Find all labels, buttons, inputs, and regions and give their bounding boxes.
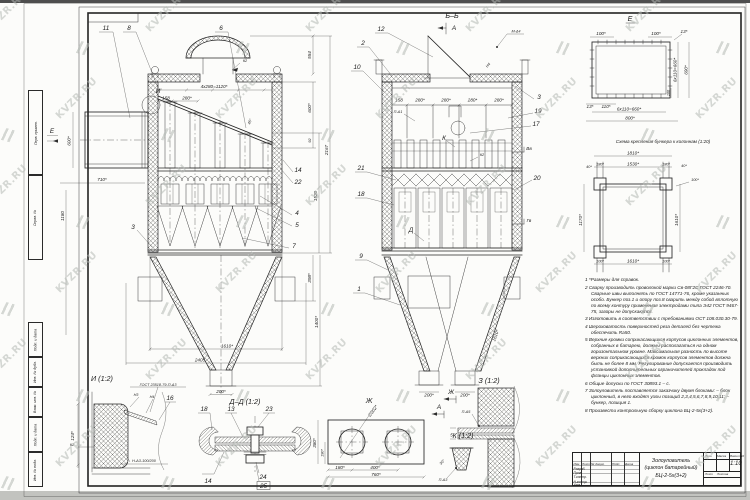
note-item-7: 7 Золоуловитель поставляется заказчику д… bbox=[585, 388, 742, 406]
sv-dim-200b: 200* bbox=[459, 393, 470, 398]
dim-2405: 2405 bbox=[194, 358, 206, 363]
doc-name-line2: (циклон батарейный) bbox=[644, 465, 697, 472]
tb-col-izm: Изм. bbox=[574, 462, 581, 466]
margin-box-podp-data-2: Подп. и дата bbox=[28, 417, 43, 452]
detail-i-marker: И bbox=[156, 88, 161, 95]
doc-name-line3: БЦ-2-5х(3+2) bbox=[655, 473, 686, 480]
detail-i-title: И (1:2) bbox=[91, 374, 113, 383]
margin-label: Подп. и дата bbox=[34, 423, 38, 446]
blueprint-page: 4х280=1120* 158 280* 45° 600* 710* 1180 … bbox=[0, 0, 750, 500]
callout-17: 17 bbox=[532, 121, 540, 128]
e-view: Е 100* 100* 13* 6х110=660* 690* 100 13* … bbox=[586, 14, 689, 121]
di-n3: Н3 bbox=[134, 393, 140, 397]
weld-p1: П-Δ1 bbox=[394, 110, 403, 114]
sc-100r: 100* bbox=[691, 178, 699, 182]
sc-100b: 100* bbox=[662, 260, 670, 264]
tb-sheets-label: Листов bbox=[717, 472, 728, 476]
callout-10: 10 bbox=[353, 64, 361, 71]
margin-label: Инв. № дубл. bbox=[34, 361, 38, 383]
callout-3: 3 bbox=[131, 224, 135, 231]
dim-inlet-width: 710* bbox=[97, 177, 107, 182]
sv-dim-280d: 280* bbox=[493, 98, 504, 103]
ev-100b: 100* bbox=[651, 31, 661, 36]
tb-col-podp: Подп. bbox=[612, 462, 620, 466]
scheme-title: Схема крепления бункера к колоннам (1:20… bbox=[616, 139, 711, 144]
margin-label: Инв. № подл. bbox=[34, 458, 38, 480]
callout-1: 1 bbox=[357, 286, 361, 293]
callout-19: 19 bbox=[534, 108, 542, 115]
callout-9: 9 bbox=[359, 253, 363, 260]
dd-14: 14 bbox=[204, 478, 212, 485]
k-weld: П-Δ3 bbox=[439, 478, 449, 482]
margin-box-podp-data-1: Подп. и дата bbox=[28, 322, 43, 357]
front-view: 4х280=1120* 158 280* 45° 600* 710* 1180 … bbox=[47, 25, 332, 396]
margin-label: Справ. № bbox=[34, 209, 38, 225]
margin-label: Взам. инв. № bbox=[34, 391, 38, 413]
dim-398: 398* bbox=[307, 273, 312, 283]
callout-12: 12 bbox=[377, 26, 385, 33]
dd-23: 23 bbox=[264, 406, 273, 413]
margin-box-perv-primen: Перв. примен. bbox=[28, 90, 43, 175]
callout-22: 22 bbox=[293, 179, 302, 186]
detail-dd: Д–Д (1:2) 18 13 23 14 24 25 bbox=[198, 397, 311, 490]
tb-lit-label: Лит. bbox=[705, 454, 712, 458]
dim-1520: 1520 bbox=[313, 190, 318, 201]
margin-label: Подп. и дата bbox=[34, 328, 38, 351]
zh-380: 380* bbox=[312, 438, 317, 448]
sv-dim-200a: 200* bbox=[423, 393, 434, 398]
dim-280: 280* bbox=[181, 96, 192, 101]
sv-k2-label: К2 bbox=[480, 153, 485, 157]
di-16: 16 bbox=[166, 395, 174, 402]
dim-1400: 1400* bbox=[314, 316, 319, 328]
detail-k: К (1:2) П-Δ3 30° bbox=[439, 431, 474, 482]
sc-1610v: 1610* bbox=[674, 214, 679, 226]
tb-row-utv: Утв. bbox=[574, 483, 582, 487]
detail-d-marker: Д bbox=[408, 227, 414, 234]
zh-190: 190* bbox=[321, 449, 325, 457]
di-n4: Н4 bbox=[150, 395, 155, 399]
sc-40l: 40* bbox=[586, 165, 592, 169]
callout-6: 6 bbox=[219, 25, 223, 32]
sc-1810: 1810* bbox=[627, 151, 639, 156]
dim-45: 45° bbox=[247, 118, 253, 125]
detail-k-marker: К bbox=[442, 135, 447, 142]
callout-21: 21 bbox=[356, 165, 365, 172]
dim-200: 200* bbox=[215, 389, 226, 394]
callout-7: 7 bbox=[292, 243, 296, 250]
tb-sheet-label: Лист bbox=[705, 472, 713, 476]
dim-92: 92 bbox=[308, 138, 312, 143]
notes-block: 1 *Размеры для справок. 2 Сварку произво… bbox=[585, 277, 742, 415]
view-a-direction: А bbox=[436, 404, 441, 411]
dim-1610: 1610* bbox=[221, 344, 233, 349]
ev-13b: 13* bbox=[587, 104, 594, 109]
sv-dim-158: 158 bbox=[395, 98, 403, 103]
tb-mass-label: Масса bbox=[717, 454, 726, 458]
di-weld: Н-Δ3-100/200 bbox=[132, 459, 157, 463]
document-name: Золоуловитель (циклон батарейный) БЦ-2-5… bbox=[639, 453, 703, 485]
callout-14: 14 bbox=[294, 167, 302, 174]
view-zh-title: Ж bbox=[365, 396, 373, 405]
level-upper: Вв bbox=[526, 146, 532, 151]
margin-box-inv-dubl: Инв. № дубл. bbox=[28, 357, 43, 387]
sv-dim-280c: 280* bbox=[467, 98, 478, 103]
callout-20: 20 bbox=[532, 175, 541, 182]
note-item-5: 5 Верхние кромки соприкасающихся корпусо… bbox=[585, 337, 742, 379]
ev-800: 800* bbox=[625, 116, 635, 121]
callout-2: 2 bbox=[360, 40, 365, 47]
view-zh: Ж ∅302* 380* 190* 180* 400* 760* bbox=[312, 396, 426, 479]
ev-110: 110* bbox=[601, 104, 610, 109]
sv-dim-280a: 280* bbox=[414, 98, 425, 103]
section-arrow-a: А bbox=[451, 25, 456, 32]
note-item-8: 8 Произвести контрольную сборку циклона … bbox=[585, 408, 742, 414]
zh-400: 400* bbox=[370, 465, 380, 470]
e-view-title: Е bbox=[628, 14, 633, 23]
ev-100v: 100 bbox=[667, 89, 671, 96]
callout-18: 18 bbox=[357, 191, 365, 198]
dim-inlet-height: 600* bbox=[67, 136, 72, 146]
sc-40r: 40* bbox=[681, 164, 687, 168]
tb-col-list: Лист bbox=[582, 462, 590, 466]
margin-box-vzam-inv: Взам. инв. № bbox=[28, 387, 43, 417]
callout-8: 8 bbox=[127, 25, 131, 32]
z-weld: П-Δ5 bbox=[462, 410, 472, 414]
detail-k-title: К (1:2) bbox=[452, 431, 473, 440]
k-angle: 30° bbox=[439, 459, 446, 466]
callout-11: 11 bbox=[103, 25, 110, 32]
sc-180b: 180* bbox=[662, 163, 670, 167]
level-lower: Гв bbox=[527, 218, 532, 223]
margin-box-inv-podl: Инв. № подл. bbox=[28, 452, 43, 487]
margin-label: Перв. примен. bbox=[34, 121, 38, 145]
note-item-4: 4 Шероховатость поверхностей реза детале… bbox=[585, 324, 742, 336]
dd-25: 25 bbox=[259, 483, 268, 490]
dd-18: 18 bbox=[200, 406, 208, 413]
view-zh-direction: Ж bbox=[447, 389, 455, 396]
margin-box-sprav: Справ. № bbox=[28, 175, 43, 260]
dim-1180: 1180 bbox=[60, 211, 65, 221]
view-e-direction: Е bbox=[50, 128, 55, 135]
sc-1170: 1170* bbox=[578, 214, 583, 226]
note-item-3: 3 Изготовить в соответствии с требования… bbox=[585, 316, 742, 322]
callout-4: 4 bbox=[295, 210, 299, 217]
dim-554: 554 bbox=[307, 51, 312, 59]
drawing-canvas: 4х280=1120* 158 280* 45° 600* 710* 1180 … bbox=[0, 0, 750, 500]
section-title: Б–Б bbox=[445, 11, 459, 20]
zh-dia: ∅302* bbox=[367, 404, 379, 418]
zh-180: 180* bbox=[335, 465, 345, 470]
weld-n4: Н4 bbox=[485, 62, 491, 68]
ev-660b: 6х110=660* bbox=[617, 107, 642, 112]
note-item-6: 6 Общие допуски по ГОСТ 30893.1 – с. bbox=[585, 381, 742, 387]
weld-m4: М-Δ4 bbox=[511, 30, 520, 34]
dim-2167: 2167 bbox=[324, 144, 329, 156]
bunker-scheme: Схема крепления бункера к колоннам (1:20… bbox=[578, 139, 711, 272]
sc-1530: 1530* bbox=[627, 162, 639, 167]
section-view: Б–Б А bbox=[351, 11, 542, 418]
sc-100a: 100* bbox=[596, 260, 604, 264]
di-gost: ГОСТ 23518-79-П-Δ3 bbox=[140, 383, 178, 387]
detail-z-title: З (1:2) bbox=[478, 376, 499, 385]
ev-100a: 100* bbox=[596, 31, 606, 36]
tb-col-data: Дата bbox=[625, 462, 633, 466]
ev-690: 690* bbox=[684, 65, 689, 75]
tb-col-docnum: № докум. bbox=[591, 462, 605, 466]
ev-660v: 6х110=660* bbox=[673, 58, 678, 83]
detail-dd-title: Д–Д (1:2) bbox=[229, 397, 261, 406]
callout-3r: 3 bbox=[537, 94, 541, 101]
ev-13t: 13* bbox=[681, 29, 688, 34]
note-item-1: 1 *Размеры для справок. bbox=[585, 277, 742, 283]
dd-24: 24 bbox=[258, 474, 267, 481]
sc-180a: 180* bbox=[596, 163, 604, 167]
zh-760: 760* bbox=[371, 472, 381, 477]
tb-scale-label: Масштаб bbox=[730, 454, 744, 458]
dim-158: 158 bbox=[162, 96, 170, 101]
dim-pitch: 4х280=1120* bbox=[201, 84, 228, 89]
sv-dim-280b: 280* bbox=[440, 98, 451, 103]
title-block: Изм. Лист № докум. Подп. Дата Разраб. Пр… bbox=[572, 452, 741, 486]
di-124: 124* bbox=[70, 431, 75, 441]
note-item-2: 2 Сварку производить проволокой марки Св… bbox=[585, 285, 742, 315]
weld-k2-label: К2 bbox=[243, 59, 248, 63]
callout-5: 5 bbox=[295, 222, 299, 229]
tb-scale-value: 1:10 bbox=[730, 461, 742, 467]
di-k2: К2 bbox=[70, 443, 75, 447]
dim-600: 600* bbox=[307, 103, 312, 113]
sc-1610b: 1610* bbox=[627, 259, 639, 264]
dd-13: 13 bbox=[227, 406, 235, 413]
